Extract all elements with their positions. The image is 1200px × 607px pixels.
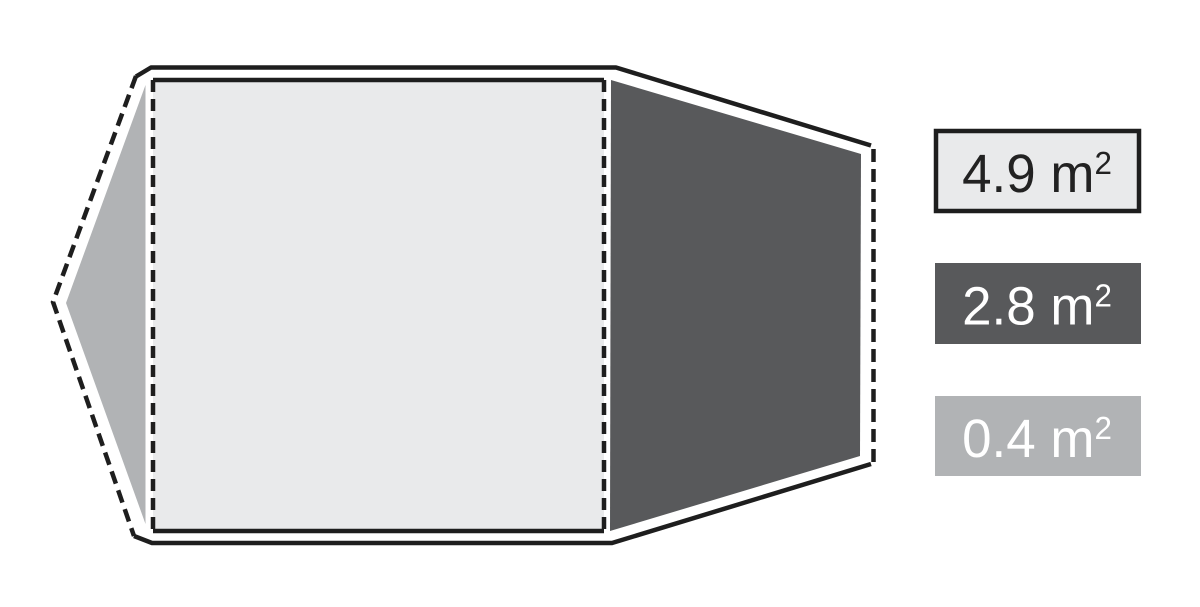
- svg-text:2.8 m2: 2.8 m2: [962, 277, 1112, 337]
- svg-text:4.9 m2: 4.9 m2: [962, 144, 1112, 204]
- svg-text:0.4 m2: 0.4 m2: [962, 409, 1112, 469]
